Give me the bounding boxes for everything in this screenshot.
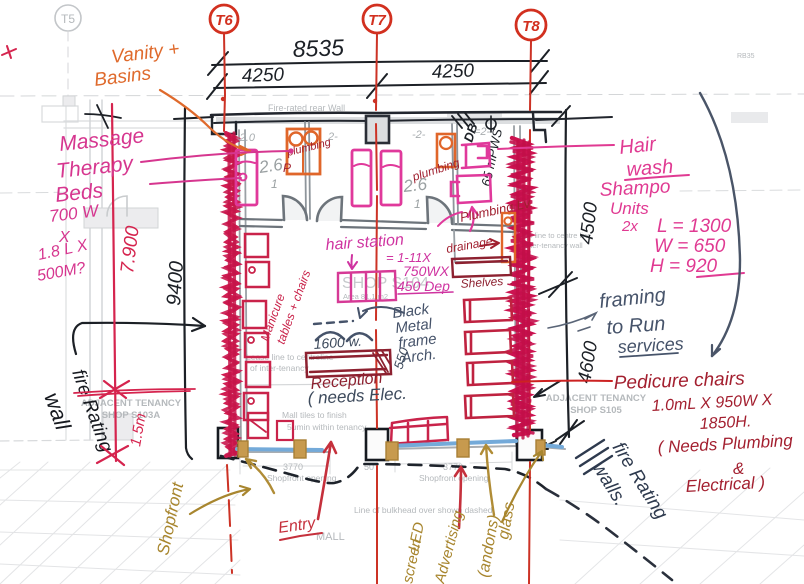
svg-text:T6: T6: [215, 12, 233, 29]
svg-text:of inter-tenancy: of inter-tenancy: [250, 363, 309, 373]
svg-text:SHOP S105: SHOP S105: [570, 405, 622, 416]
svg-text:9400: 9400: [163, 260, 188, 306]
svg-text:Shopfront opening: Shopfront opening: [419, 473, 489, 483]
svg-text:RB35: RB35: [737, 53, 755, 60]
svg-text:1600 w.: 1600 w.: [313, 333, 362, 352]
svg-text:750WX: 750WX: [403, 263, 450, 279]
svg-text:4250: 4250: [431, 61, 474, 83]
svg-text:H = 920: H = 920: [650, 256, 718, 277]
svg-text:W = 650: W = 650: [654, 236, 726, 257]
svg-text:P: P: [283, 161, 291, 175]
svg-text:-2-: -2-: [412, 129, 426, 141]
svg-text:1: 1: [271, 177, 278, 191]
svg-text:4250: 4250: [241, 65, 284, 87]
svg-text:-2.0: -2.0: [236, 132, 256, 144]
svg-text:Line of bulkhead over shown da: Line of bulkhead over shown dashed: [354, 505, 493, 515]
svg-text:1: 1: [414, 197, 421, 211]
svg-text:5umin within tenancy: 5umin within tenancy: [287, 422, 367, 432]
svg-text:2.6: 2.6: [257, 155, 285, 177]
svg-text:2x: 2x: [621, 218, 638, 235]
svg-text:Hair: Hair: [618, 133, 658, 159]
svg-text:Mall tiles to finish: Mall tiles to finish: [282, 410, 347, 420]
svg-text:T5: T5: [61, 12, 75, 26]
svg-text:3770: 3770: [283, 462, 303, 472]
svg-text:1850H.: 1850H.: [699, 413, 751, 433]
svg-text:T8: T8: [522, 18, 540, 35]
svg-text:ADJACENT TENANCY: ADJACENT TENANCY: [546, 393, 647, 404]
svg-text:T7: T7: [368, 12, 386, 29]
svg-text:8535: 8535: [292, 34, 344, 62]
svg-text:Units: Units: [610, 199, 649, 218]
svg-text:L = 1300: L = 1300: [657, 216, 732, 237]
svg-text:Shampo: Shampo: [599, 176, 671, 201]
svg-text:=2-: =2-: [474, 126, 491, 138]
